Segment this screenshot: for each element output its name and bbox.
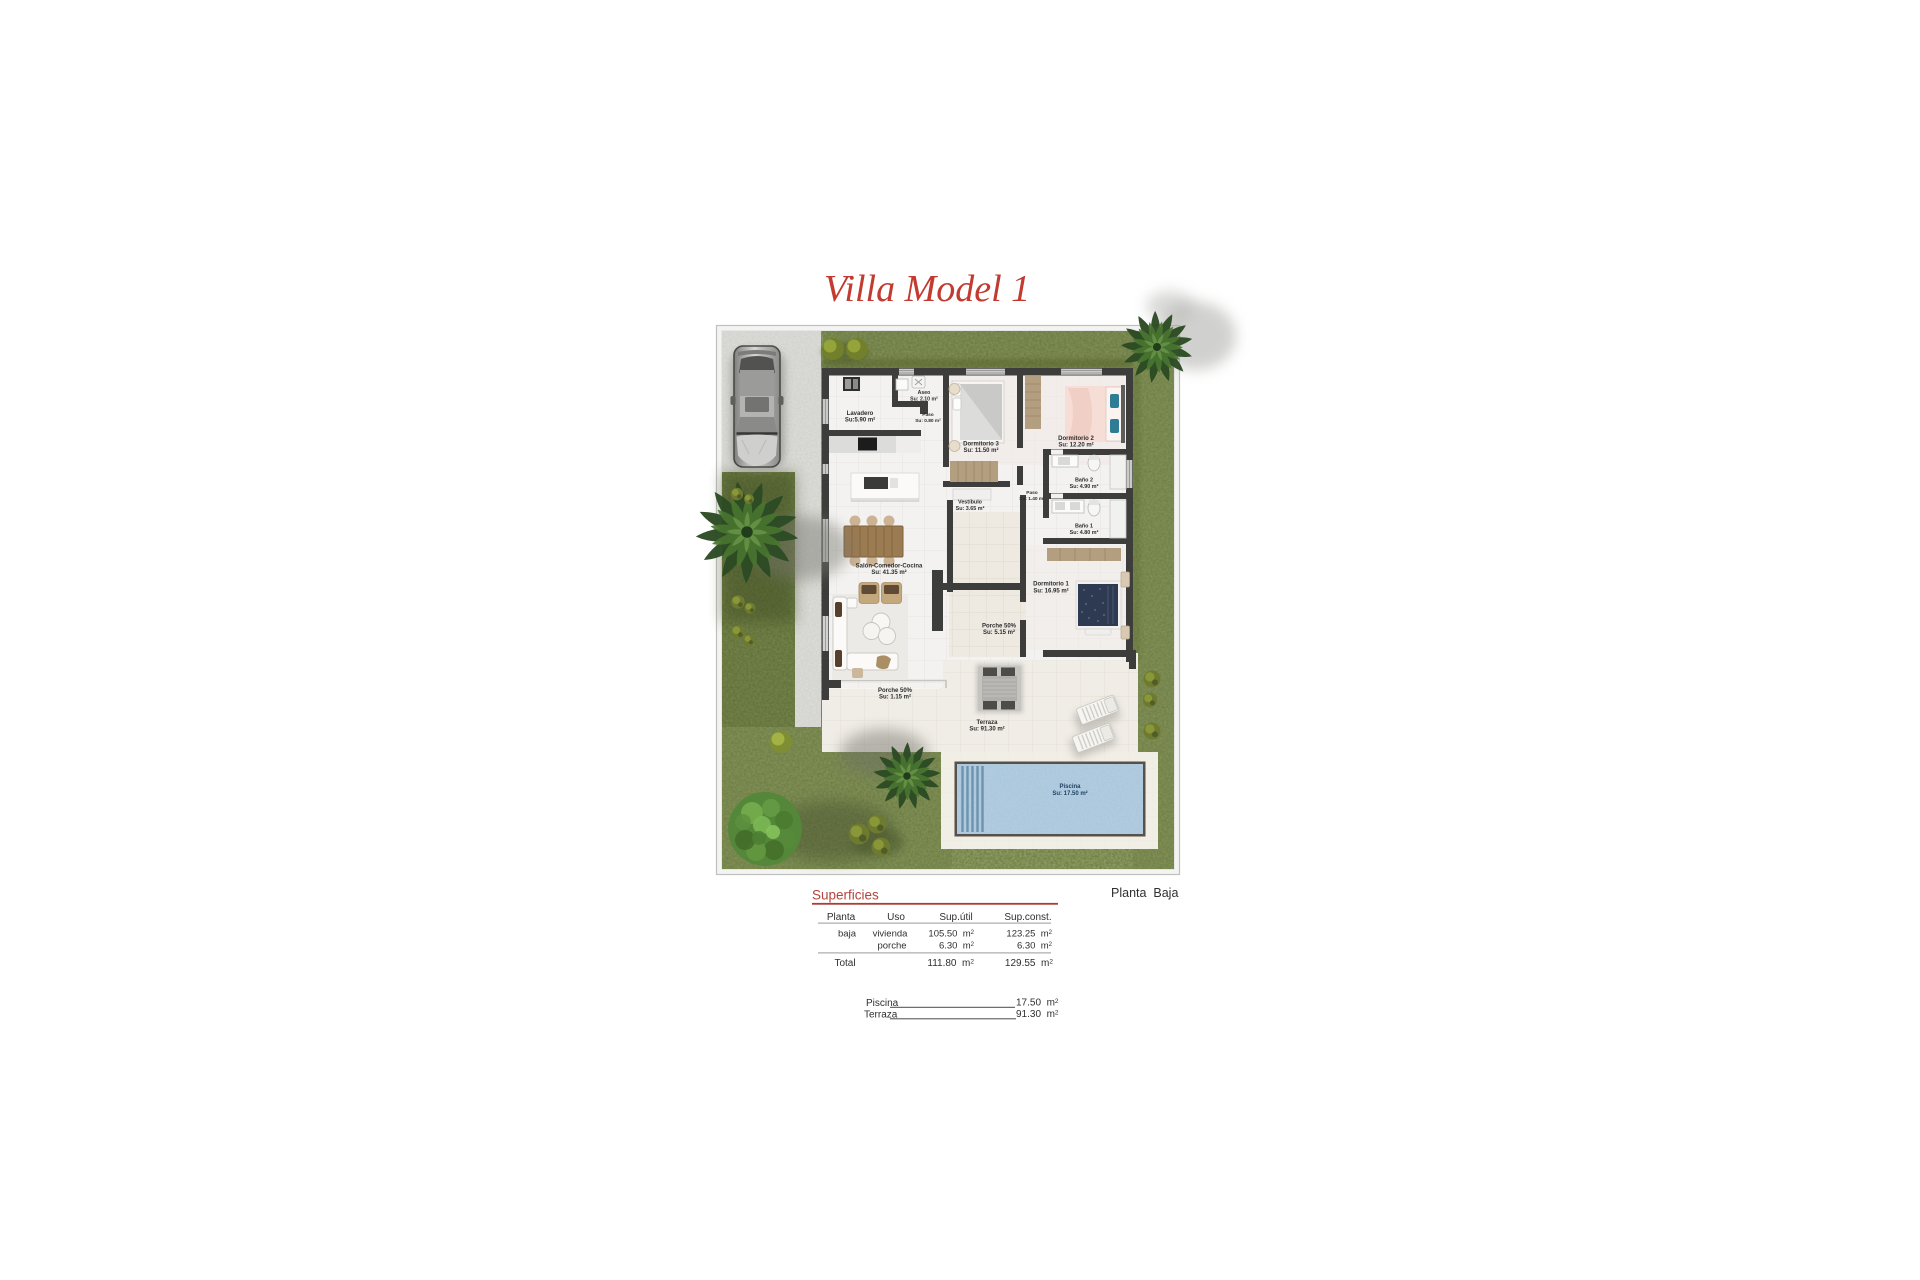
svg-text:Dormitorio 1: Dormitorio 1 — [1033, 582, 1069, 588]
svg-text:Dormitorio 2: Dormitorio 2 — [1058, 436, 1094, 442]
svg-text:Superficies: Superficies — [812, 888, 879, 903]
svg-text:Su: 17.50 m²: Su: 17.50 m² — [1052, 790, 1087, 797]
svg-text:Terraza: Terraza — [977, 720, 999, 726]
svg-text:Sup.const.: Sup.const. — [1004, 912, 1051, 923]
svg-text:111.80 m2: 111.80 m2 — [927, 958, 974, 969]
svg-text:Su: 1.15 m²: Su: 1.15 m² — [879, 694, 911, 701]
svg-text:baja: baja — [838, 929, 857, 940]
svg-text:Piscina: Piscina — [1059, 784, 1081, 790]
svg-text:Total: Total — [834, 958, 855, 969]
svg-text:porche: porche — [877, 941, 906, 952]
svg-text:105.50 m2: 105.50 m2 — [928, 929, 974, 940]
svg-text:91.30 m2: 91.30 m2 — [1016, 1009, 1059, 1020]
svg-text:Salón-Comedor-Cocina: Salón-Comedor-Cocina — [856, 564, 923, 570]
svg-text:17.50 m2: 17.50 m2 — [1016, 998, 1059, 1009]
svg-text:Lavadero: Lavadero — [847, 411, 874, 417]
svg-text:Baño 2: Baño 2 — [1075, 478, 1093, 484]
svg-text:Porche 50%: Porche 50% — [878, 688, 913, 694]
svg-text:Su: 2.10 m²: Su: 2.10 m² — [910, 397, 938, 403]
svg-text:Vestíbulo: Vestíbulo — [958, 500, 983, 506]
svg-text:Aseo: Aseo — [918, 390, 931, 396]
svg-text:Paso: Paso — [922, 412, 934, 418]
svg-text:Su: 1.40 m²: Su: 1.40 m² — [1019, 496, 1045, 502]
svg-text:Paso: Paso — [1026, 490, 1038, 496]
svg-text:Su: 11.50 m²: Su: 11.50 m² — [963, 447, 998, 454]
svg-text:Su:5.90 m²: Su:5.90 m² — [845, 417, 875, 424]
svg-text:Su: 91.30 m²: Su: 91.30 m² — [969, 726, 1004, 733]
svg-text:Planta: Planta — [827, 912, 856, 923]
svg-text:123.25 m2: 123.25 m2 — [1006, 929, 1052, 940]
svg-text:Su: 3.65 m²: Su: 3.65 m² — [956, 506, 985, 512]
svg-text:6.30 m2: 6.30 m2 — [939, 941, 975, 952]
svg-text:Uso: Uso — [887, 912, 905, 923]
svg-text:Su: 4.80 m²: Su: 4.80 m² — [1070, 530, 1099, 536]
svg-text:Porche 50%: Porche 50% — [982, 624, 1017, 630]
svg-text:Su: 4.90 m²: Su: 4.90 m² — [1070, 484, 1099, 490]
svg-text:Su: 0.80 m²: Su: 0.80 m² — [915, 418, 941, 424]
svg-text:Baño 1: Baño 1 — [1075, 524, 1093, 530]
svg-text:Su: 12.20 m²: Su: 12.20 m² — [1058, 442, 1093, 449]
svg-text:Sup.útil: Sup.útil — [939, 912, 972, 923]
svg-text:Su: 41.35 m²: Su: 41.35 m² — [871, 569, 906, 576]
svg-text:Villa Model 1: Villa Model 1 — [824, 268, 1030, 310]
svg-text:vivienda: vivienda — [873, 929, 909, 940]
svg-text:Dormitorio 3: Dormitorio 3 — [963, 442, 999, 448]
svg-text:Planta Baja: Planta Baja — [1111, 886, 1178, 900]
svg-text:129.55 m2: 129.55 m2 — [1005, 958, 1053, 969]
svg-text:6.30 m2: 6.30 m2 — [1017, 941, 1053, 952]
svg-text:Su: 16.95 m²: Su: 16.95 m² — [1033, 588, 1068, 595]
svg-text:Su: 5.15 m²: Su: 5.15 m² — [983, 629, 1015, 636]
